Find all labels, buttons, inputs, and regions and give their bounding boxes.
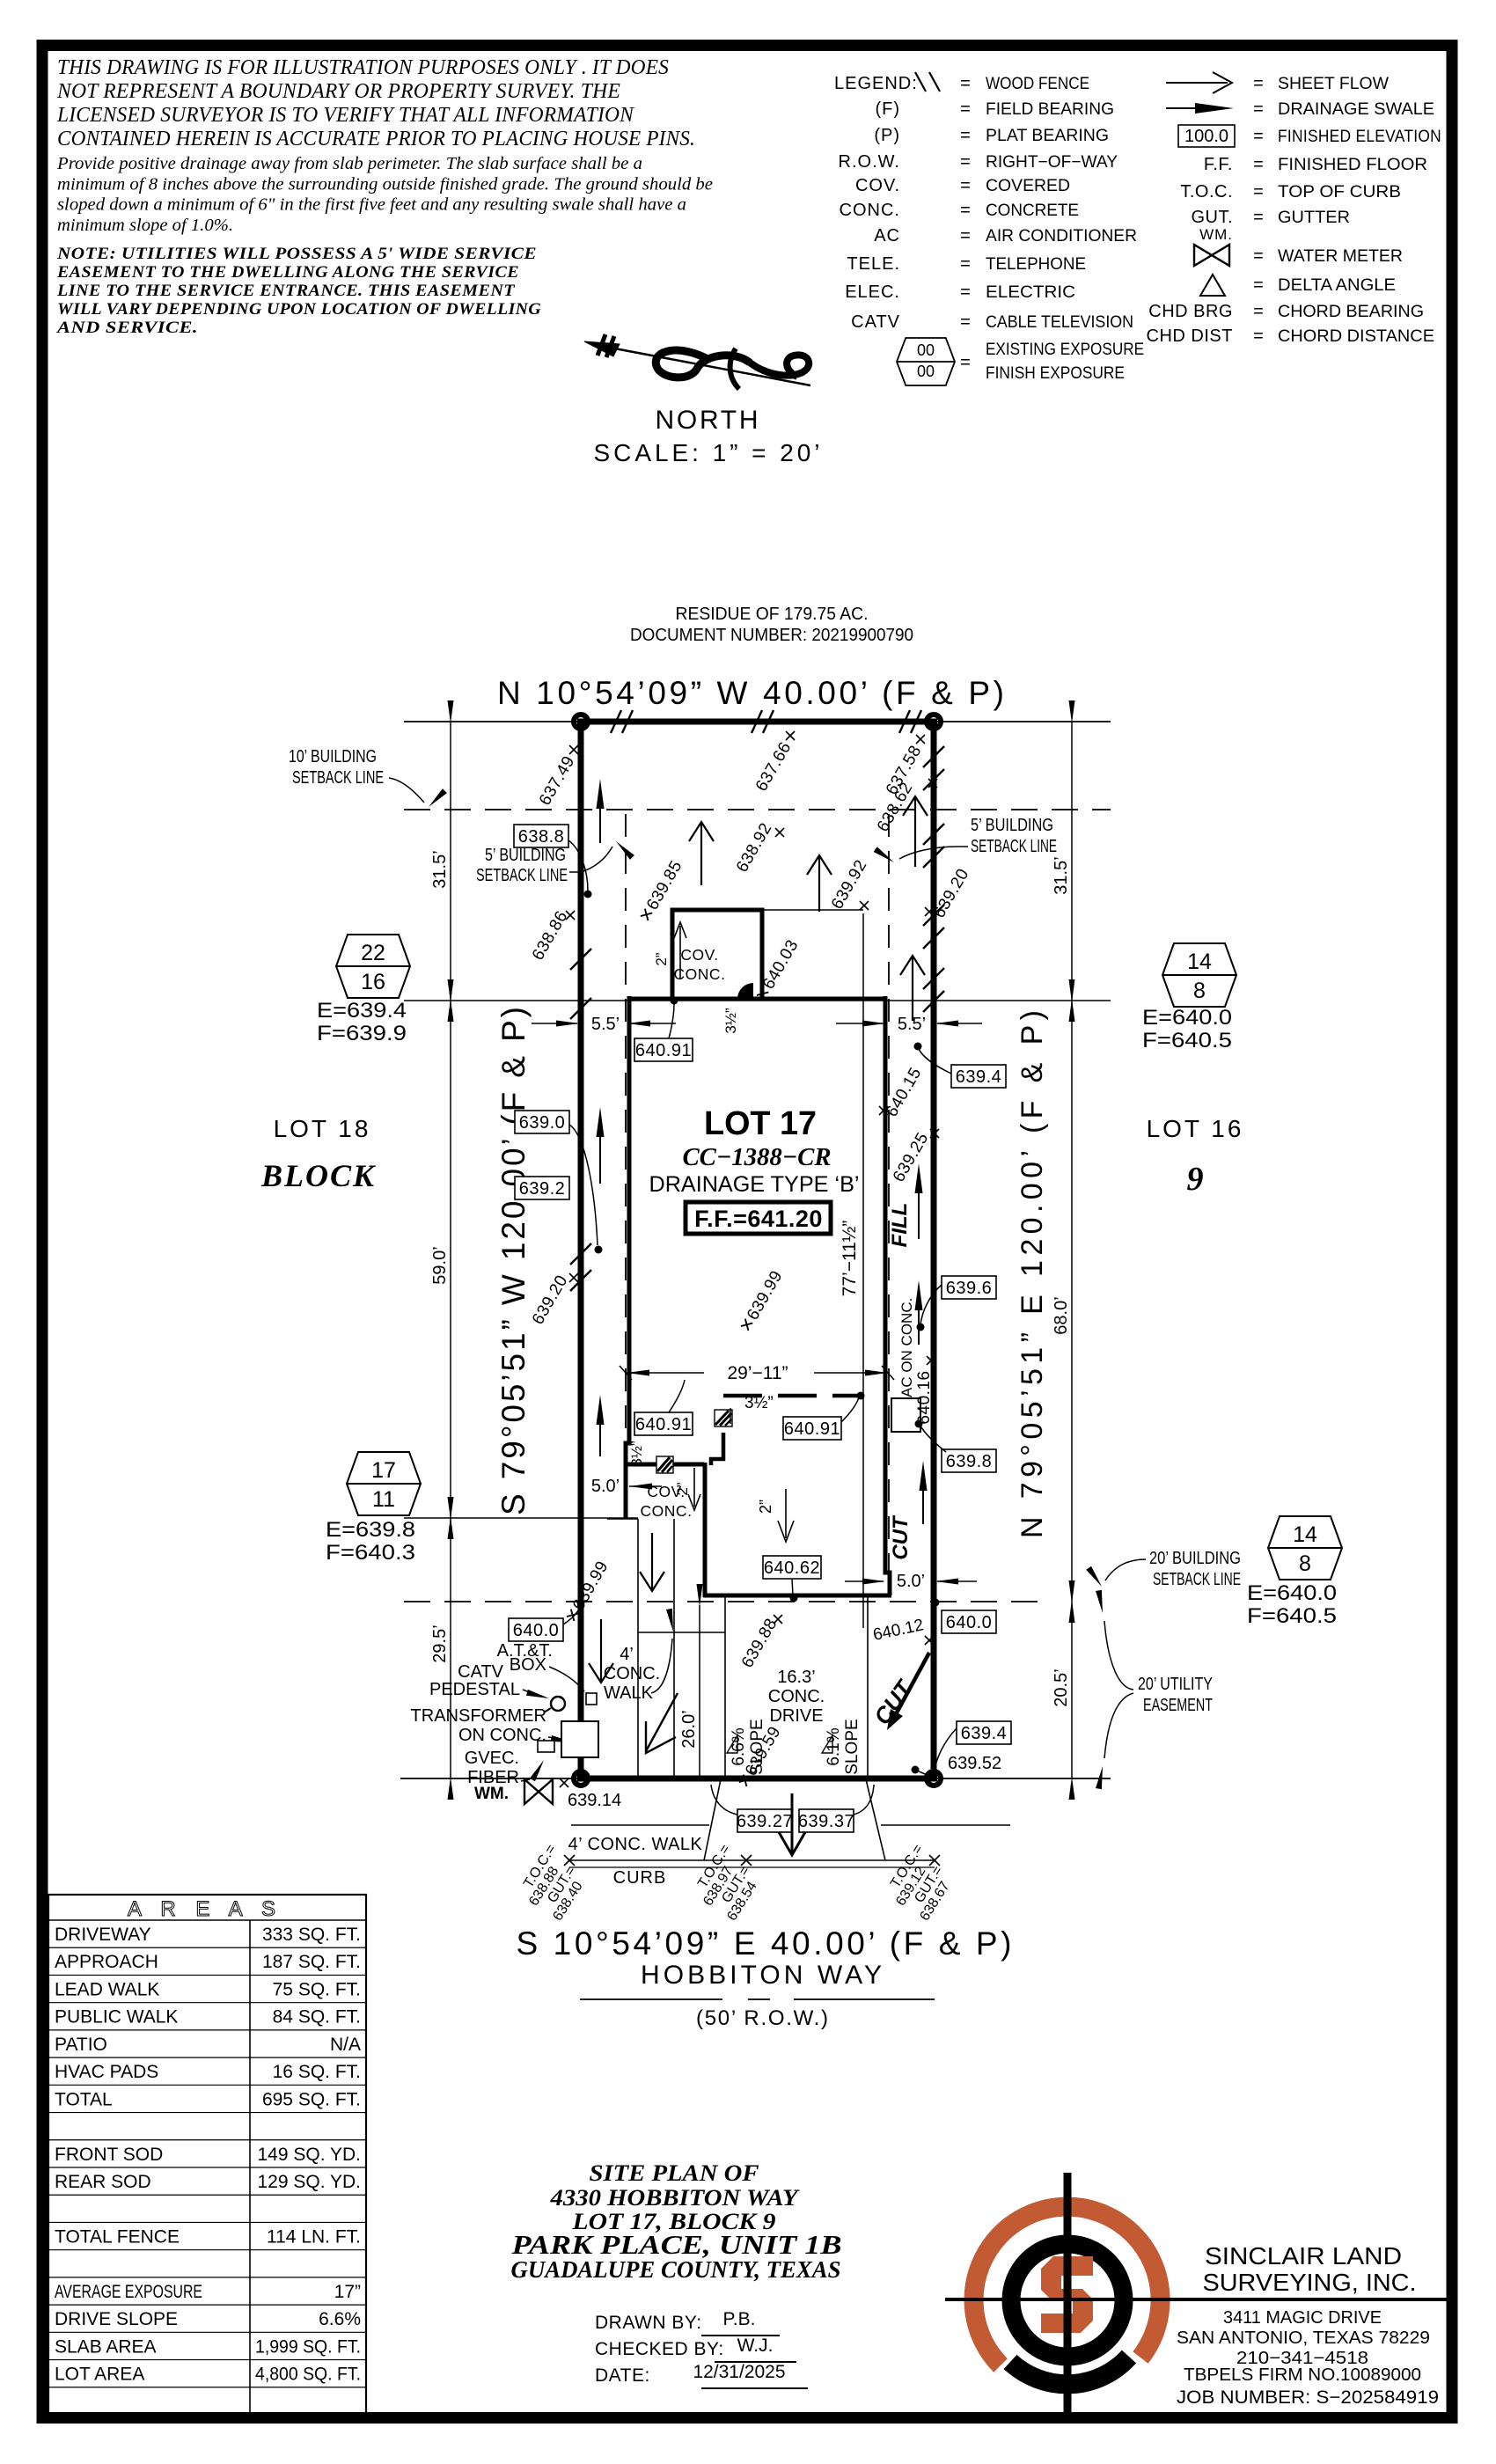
svg-text:4330 HOBBITON WAY: 4330 HOBBITON WAY bbox=[549, 2185, 799, 2211]
svg-text:5.0’: 5.0’ bbox=[897, 1572, 925, 1591]
svg-text:75 SQ. FT.: 75 SQ. FT. bbox=[273, 1979, 361, 1999]
svg-text:=: = bbox=[960, 74, 971, 93]
svg-text:SETBACK LINE: SETBACK LINE bbox=[971, 837, 1057, 856]
svg-text:=: = bbox=[1253, 74, 1264, 93]
svg-text:=: = bbox=[1253, 155, 1264, 174]
svg-text:639.14: 639.14 bbox=[568, 1791, 621, 1810]
svg-text:ON CONC.: ON CONC. bbox=[458, 1726, 546, 1745]
svg-text:CONC.: CONC. bbox=[604, 1664, 660, 1683]
svg-text:SLAB AREA: SLAB AREA bbox=[55, 2336, 157, 2357]
svg-text:639.8: 639.8 bbox=[946, 1452, 993, 1471]
svg-text:E=639.4: E=639.4 bbox=[317, 999, 407, 1023]
svg-text:84 SQ. FT.: 84 SQ. FT. bbox=[273, 2007, 361, 2028]
svg-text:=: = bbox=[1253, 326, 1264, 346]
svg-text:4’ CONC. WALK: 4’ CONC. WALK bbox=[568, 1835, 703, 1854]
svg-text:DOCUMENT NUMBER: 20219900790: DOCUMENT NUMBER: 20219900790 bbox=[630, 626, 913, 645]
svg-text:DRIVEWAY: DRIVEWAY bbox=[55, 1925, 151, 1945]
svg-text:PATIO: PATIO bbox=[55, 2035, 107, 2055]
svg-text:SITE PLAN OF: SITE PLAN OF bbox=[590, 2160, 759, 2186]
svg-text:LOT 16: LOT 16 bbox=[1147, 1115, 1244, 1142]
svg-text:CURB: CURB bbox=[613, 1868, 667, 1888]
svg-text:9: 9 bbox=[1187, 1161, 1204, 1198]
svg-text:CHORD BEARING: CHORD BEARING bbox=[1278, 303, 1424, 321]
svg-text:=: = bbox=[1253, 246, 1264, 266]
svg-text:CONC.: CONC. bbox=[768, 1687, 825, 1706]
svg-text:638.8: 638.8 bbox=[518, 827, 565, 847]
svg-text:GVEC.: GVEC. bbox=[465, 1749, 519, 1768]
svg-text:16.3’: 16.3’ bbox=[777, 1668, 815, 1687]
svg-text:DRAINAGE TYPE ‘B’: DRAINAGE TYPE ‘B’ bbox=[649, 1172, 860, 1197]
svg-text:=: = bbox=[960, 99, 971, 119]
svg-text:DRAWN BY:: DRAWN BY: bbox=[595, 2313, 702, 2333]
svg-text:LOT AREA: LOT AREA bbox=[55, 2365, 144, 2385]
svg-text:639.4: 639.4 bbox=[961, 1724, 1008, 1743]
svg-text:31.5’: 31.5’ bbox=[430, 850, 450, 888]
svg-text:REAR SOD: REAR SOD bbox=[55, 2172, 151, 2192]
svg-text:DELTA ANGLE: DELTA ANGLE bbox=[1278, 276, 1396, 295]
svg-text:F=640.3: F=640.3 bbox=[326, 1541, 415, 1565]
svg-text:F.F.: F.F. bbox=[1204, 155, 1233, 174]
svg-text:CONC.: CONC. bbox=[641, 1502, 693, 1520]
svg-text:=: = bbox=[960, 126, 971, 145]
svg-text:LICENSED SURVEYOR IS TO VERIFY: LICENSED SURVEYOR IS TO VERIFY THAT ALL … bbox=[56, 103, 634, 127]
svg-text:639.37: 639.37 bbox=[798, 1812, 854, 1831]
svg-text:TBPELS FIRM NO.10089000: TBPELS FIRM NO.10089000 bbox=[1184, 2365, 1421, 2385]
svg-text:CATV: CATV bbox=[851, 312, 900, 332]
svg-text:FINISHED FLOOR: FINISHED FLOOR bbox=[1278, 156, 1427, 174]
svg-text:HOBBITON WAY: HOBBITON WAY bbox=[641, 1961, 882, 1990]
svg-text:SETBACK LINE: SETBACK LINE bbox=[476, 866, 568, 885]
svg-text:F=639.9: F=639.9 bbox=[317, 1022, 407, 1045]
svg-text:6.6%: 6.6% bbox=[319, 2309, 361, 2329]
svg-text:=: = bbox=[960, 353, 971, 372]
svg-text:minimum slope of 1.0%.: minimum slope of 1.0%. bbox=[57, 216, 233, 235]
svg-text:3½”: 3½” bbox=[722, 1008, 739, 1034]
svg-text:AIR CONDITIONER: AIR CONDITIONER bbox=[986, 227, 1137, 246]
svg-text:14: 14 bbox=[1187, 950, 1212, 974]
svg-text:CUT: CUT bbox=[889, 1514, 913, 1560]
svg-text:5.0’: 5.0’ bbox=[591, 1477, 620, 1496]
svg-text:29.5’: 29.5’ bbox=[430, 1624, 450, 1662]
svg-text:=: = bbox=[1253, 127, 1264, 146]
svg-text:AC ON CONC.: AC ON CONC. bbox=[898, 1298, 915, 1397]
svg-text:TOP OF CURB: TOP OF CURB bbox=[1278, 183, 1401, 202]
svg-text:SHEET FLOW: SHEET FLOW bbox=[1278, 75, 1389, 93]
svg-text:F.F.=641.20: F.F.=641.20 bbox=[694, 1206, 823, 1232]
svg-text:APPROACH: APPROACH bbox=[55, 1952, 158, 1972]
svg-text:PUBLIC WALK: PUBLIC WALK bbox=[55, 2007, 178, 2028]
svg-text:20’ UTILITY: 20’ UTILITY bbox=[1138, 1675, 1213, 1694]
svg-text:333 SQ. FT.: 333 SQ. FT. bbox=[262, 1925, 361, 1945]
svg-text:8: 8 bbox=[1299, 1551, 1311, 1576]
svg-text:EASEMENT: EASEMENT bbox=[1143, 1696, 1213, 1715]
svg-text:20.5’: 20.5’ bbox=[1052, 1668, 1071, 1706]
svg-text:P.B.: P.B. bbox=[723, 2309, 756, 2329]
svg-text:CATV: CATV bbox=[458, 1662, 504, 1682]
svg-text:=: = bbox=[1253, 182, 1264, 202]
svg-text:16: 16 bbox=[361, 970, 385, 994]
svg-text:640.0: 640.0 bbox=[513, 1621, 560, 1640]
svg-text:5’ BUILDING: 5’ BUILDING bbox=[971, 816, 1053, 835]
svg-text:=: = bbox=[960, 312, 971, 332]
svg-text:695 SQ. FT.: 695 SQ. FT. bbox=[262, 2089, 361, 2109]
svg-text:640.91: 640.91 bbox=[635, 1415, 692, 1434]
svg-text:=: = bbox=[1253, 275, 1264, 295]
svg-text:T.O.C.: T.O.C. bbox=[1180, 182, 1233, 202]
svg-text:=: = bbox=[1253, 208, 1264, 227]
svg-text:640.91: 640.91 bbox=[784, 1419, 840, 1439]
svg-text:00: 00 bbox=[917, 341, 935, 359]
svg-text:BLOCK: BLOCK bbox=[260, 1158, 377, 1193]
svg-text:12/31/2025: 12/31/2025 bbox=[693, 2362, 785, 2382]
svg-text:THIS DRAWING IS FOR ILLUSTRATI: THIS DRAWING IS FOR ILLUSTRATION PURPOSE… bbox=[57, 55, 669, 79]
svg-text:2”: 2” bbox=[653, 952, 670, 965]
svg-text:F=640.5: F=640.5 bbox=[1247, 1604, 1337, 1628]
svg-text:31.5’: 31.5’ bbox=[1052, 856, 1071, 894]
svg-text:WATER METER: WATER METER bbox=[1278, 247, 1403, 266]
svg-text:4,800 SQ. FT.: 4,800 SQ. FT. bbox=[255, 2365, 361, 2385]
svg-text:SLOPE: SLOPE bbox=[748, 1719, 766, 1774]
svg-text:=: = bbox=[960, 152, 971, 172]
svg-text:6.6%: 6.6% bbox=[730, 1727, 748, 1765]
svg-text:3½”: 3½” bbox=[744, 1394, 774, 1412]
svg-text:COV.: COV. bbox=[855, 176, 900, 195]
svg-text:5’ BUILDING: 5’ BUILDING bbox=[485, 846, 566, 865]
svg-text:AVERAGE EXPOSURE: AVERAGE EXPOSURE bbox=[55, 2282, 202, 2302]
svg-text:(P): (P) bbox=[874, 126, 900, 145]
svg-text:SURVEYING, INC.: SURVEYING, INC. bbox=[1203, 2269, 1417, 2296]
svg-text:AND SERVICE.: AND SERVICE. bbox=[56, 319, 198, 337]
svg-text:187 SQ. FT.: 187 SQ. FT. bbox=[262, 1952, 361, 1972]
svg-text:1,999 SQ. FT.: 1,999 SQ. FT. bbox=[255, 2336, 361, 2357]
svg-text:Provide positive drainage away: Provide positive drainage away from slab… bbox=[56, 154, 642, 173]
svg-text:00: 00 bbox=[917, 363, 935, 380]
svg-text:20’ BUILDING: 20’ BUILDING bbox=[1149, 1549, 1241, 1568]
svg-text:F=640.5: F=640.5 bbox=[1142, 1029, 1232, 1052]
svg-text:NORTH: NORTH bbox=[656, 406, 759, 435]
svg-text:FINISHED ELEVATION: FINISHED ELEVATION bbox=[1278, 128, 1441, 146]
svg-text:3411 MAGIC DRIVE: 3411 MAGIC DRIVE bbox=[1223, 2308, 1382, 2328]
svg-text:CABLE TELEVISION: CABLE TELEVISION bbox=[986, 313, 1133, 332]
svg-text:CHD BRG: CHD BRG bbox=[1148, 302, 1233, 321]
svg-text:=: = bbox=[960, 226, 971, 246]
svg-text:16 SQ. FT.: 16 SQ. FT. bbox=[273, 2062, 361, 2082]
svg-text:=: = bbox=[960, 176, 971, 195]
svg-text:SETBACK LINE: SETBACK LINE bbox=[1153, 1570, 1241, 1589]
svg-text:CHECKED BY:: CHECKED BY: bbox=[595, 2339, 724, 2359]
svg-text:=: = bbox=[1253, 302, 1264, 321]
svg-text:17”: 17” bbox=[334, 2282, 361, 2302]
svg-text:WALK: WALK bbox=[604, 1683, 654, 1703]
svg-text:DATE:: DATE: bbox=[595, 2365, 650, 2386]
svg-text:PARK PLACE, UNIT 1B: PARK PLACE, UNIT 1B bbox=[510, 2229, 841, 2260]
svg-text:SCALE: 1” = 20’: SCALE: 1” = 20’ bbox=[594, 439, 820, 466]
svg-text:DRIVE: DRIVE bbox=[769, 1706, 823, 1726]
svg-text:LEAD WALK: LEAD WALK bbox=[55, 1979, 159, 1999]
svg-text:CONC.: CONC. bbox=[674, 965, 726, 983]
svg-text:NOTE: UTILITIES WILL POSSESS A: NOTE: UTILITIES WILL POSSESS A 5' WIDE S… bbox=[56, 245, 537, 263]
svg-text:TOTAL FENCE: TOTAL FENCE bbox=[55, 2226, 180, 2247]
svg-text:(F): (F) bbox=[875, 99, 900, 119]
svg-text:COVERED: COVERED bbox=[986, 177, 1070, 195]
svg-text:WILL VARY DEPENDING UPON LOCAT: WILL VARY DEPENDING UPON LOCATION OF DWE… bbox=[57, 300, 541, 319]
svg-text:SLOPE: SLOPE bbox=[843, 1719, 862, 1774]
svg-text:639.4: 639.4 bbox=[956, 1067, 1002, 1087]
svg-text:LEGEND:: LEGEND: bbox=[834, 74, 918, 93]
svg-text:CC−1388−CR: CC−1388−CR bbox=[683, 1143, 832, 1171]
svg-text:FILL: FILL bbox=[888, 1203, 912, 1248]
svg-text:NOT REPRESENT A BOUNDARY OR PR: NOT REPRESENT A BOUNDARY OR PROPERTY SUR… bbox=[56, 79, 620, 103]
svg-text:E=640.0: E=640.0 bbox=[1247, 1581, 1337, 1605]
svg-text:GUTTER: GUTTER bbox=[1278, 209, 1350, 227]
svg-text:639.27: 639.27 bbox=[737, 1812, 793, 1831]
svg-text:77’−11½”: 77’−11½” bbox=[840, 1221, 860, 1297]
svg-text:5.5’: 5.5’ bbox=[591, 1015, 620, 1034]
svg-text:26.0’: 26.0’ bbox=[679, 1710, 699, 1748]
svg-text:640.0: 640.0 bbox=[946, 1613, 993, 1632]
svg-text:639.0: 639.0 bbox=[519, 1113, 566, 1133]
svg-text:8: 8 bbox=[1193, 979, 1206, 1003]
svg-text:minimum of 8 inches above the: minimum of 8 inches above the surroundin… bbox=[57, 174, 713, 194]
svg-text:JOB NUMBER: S−202584919: JOB NUMBER: S−202584919 bbox=[1177, 2387, 1439, 2408]
svg-text:2”: 2” bbox=[674, 1482, 691, 1495]
svg-text:29’−11”: 29’−11” bbox=[727, 1363, 788, 1383]
svg-text:5.5’: 5.5’ bbox=[898, 1015, 926, 1034]
svg-text:639.2: 639.2 bbox=[519, 1179, 566, 1199]
svg-text:BOX: BOX bbox=[510, 1655, 546, 1675]
svg-text:TRANSFORMER: TRANSFORMER bbox=[411, 1706, 546, 1726]
svg-text:11: 11 bbox=[372, 1487, 395, 1512]
svg-text:COV.: COV. bbox=[680, 946, 718, 964]
svg-text:17: 17 bbox=[371, 1458, 396, 1483]
svg-text:CONTAINED HEREIN IS ACCURATE P: CONTAINED HEREIN IS ACCURATE PRIOR TO PL… bbox=[57, 127, 695, 150]
svg-text:68.0’: 68.0’ bbox=[1052, 1296, 1071, 1334]
svg-text:SETBACK LINE: SETBACK LINE bbox=[292, 768, 384, 788]
svg-text:AC: AC bbox=[874, 226, 900, 246]
svg-text:ELECTRIC: ELECTRIC bbox=[986, 283, 1075, 302]
svg-text:CHD DIST: CHD DIST bbox=[1147, 326, 1233, 346]
svg-text:DRIVE SLOPE: DRIVE SLOPE bbox=[55, 2309, 178, 2329]
svg-text:640.91: 640.91 bbox=[635, 1041, 692, 1060]
svg-text:2”: 2” bbox=[757, 1500, 774, 1514]
svg-text:(50’ R.O.W.): (50’ R.O.W.) bbox=[696, 2006, 828, 2030]
svg-text:W.J.: W.J. bbox=[737, 2336, 774, 2356]
svg-text:WOOD FENCE: WOOD FENCE bbox=[986, 75, 1089, 93]
svg-text:ELEC.: ELEC. bbox=[845, 282, 900, 302]
svg-text:10’ BUILDING: 10’ BUILDING bbox=[289, 747, 377, 766]
svg-text:GUADALUPE COUNTY, TEXAS: GUADALUPE COUNTY, TEXAS bbox=[511, 2256, 841, 2283]
svg-text:14: 14 bbox=[1293, 1522, 1317, 1547]
svg-text:CHORD DISTANCE: CHORD DISTANCE bbox=[1278, 327, 1434, 346]
svg-text:sloped down a minimum of 6" in: sloped down a minimum of 6" in the first… bbox=[57, 195, 686, 215]
svg-text:R.O.W.: R.O.W. bbox=[839, 152, 900, 172]
svg-text:A R E A S: A R E A S bbox=[128, 1897, 282, 1921]
svg-text:149 SQ. YD.: 149 SQ. YD. bbox=[257, 2145, 361, 2165]
svg-text:EASEMENT TO THE DWELLING ALONG: EASEMENT TO THE DWELLING ALONG THE SERVI… bbox=[56, 263, 519, 282]
svg-text:PEDESTAL: PEDESTAL bbox=[429, 1680, 520, 1699]
svg-text:FIELD BEARING: FIELD BEARING bbox=[986, 100, 1114, 119]
svg-text:=: = bbox=[960, 201, 971, 220]
svg-text:TOTAL: TOTAL bbox=[55, 2089, 113, 2109]
svg-text:640.62: 640.62 bbox=[764, 1558, 820, 1578]
svg-text:E=640.0: E=640.0 bbox=[1142, 1006, 1232, 1030]
svg-text:FINISH EXPOSURE: FINISH EXPOSURE bbox=[986, 364, 1125, 383]
svg-text:639.52: 639.52 bbox=[948, 1754, 1001, 1773]
svg-text:WM.: WM. bbox=[474, 1785, 509, 1803]
svg-text:CONCRETE: CONCRETE bbox=[986, 202, 1079, 220]
svg-text:E=639.8: E=639.8 bbox=[326, 1518, 415, 1542]
svg-text:TELEPHONE: TELEPHONE bbox=[986, 255, 1086, 274]
svg-text:6.1%: 6.1% bbox=[825, 1727, 843, 1765]
svg-text:=: = bbox=[960, 282, 971, 302]
svg-text:114 LN. FT.: 114 LN. FT. bbox=[267, 2226, 361, 2247]
svg-text:LOT 18: LOT 18 bbox=[274, 1115, 371, 1142]
svg-text:=: = bbox=[960, 254, 971, 274]
svg-text:EXISTING EXPOSURE: EXISTING EXPOSURE bbox=[986, 341, 1144, 359]
svg-text:4’: 4’ bbox=[620, 1645, 634, 1664]
svg-text:FRONT SOD: FRONT SOD bbox=[55, 2145, 163, 2165]
svg-text:3½”: 3½” bbox=[628, 1441, 645, 1467]
svg-text:N/A: N/A bbox=[330, 2035, 361, 2055]
svg-text:SAN ANTONIO, TEXAS 78229: SAN ANTONIO, TEXAS 78229 bbox=[1177, 2328, 1430, 2348]
svg-text:RIGHT−OF−WAY: RIGHT−OF−WAY bbox=[986, 153, 1118, 172]
svg-text:SINCLAIR LAND: SINCLAIR LAND bbox=[1205, 2242, 1402, 2270]
svg-text:PLAT BEARING: PLAT BEARING bbox=[986, 127, 1109, 145]
svg-text:WM.: WM. bbox=[1199, 226, 1233, 243]
svg-text:HVAC PADS: HVAC PADS bbox=[55, 2062, 158, 2082]
svg-text:DRAINAGE SWALE: DRAINAGE SWALE bbox=[1278, 100, 1434, 119]
svg-text:GUT.: GUT. bbox=[1191, 208, 1233, 227]
svg-text:LINE TO THE SERVICE ENTRANCE.: LINE TO THE SERVICE ENTRANCE. THIS EASEM… bbox=[56, 282, 516, 300]
svg-text:LOT 17: LOT 17 bbox=[704, 1105, 817, 1142]
svg-text:100.0: 100.0 bbox=[1184, 127, 1228, 146]
svg-text:RESIDUE OF 179.75 AC.: RESIDUE OF 179.75 AC. bbox=[676, 605, 869, 624]
svg-text:CONC.: CONC. bbox=[840, 201, 900, 220]
svg-text:59.0’: 59.0’ bbox=[430, 1246, 450, 1284]
svg-text:TELE.: TELE. bbox=[847, 254, 900, 274]
svg-text:129 SQ. YD.: 129 SQ. YD. bbox=[257, 2172, 361, 2192]
svg-text:=: = bbox=[1253, 99, 1264, 119]
svg-text:639.6: 639.6 bbox=[946, 1279, 993, 1298]
svg-text:22: 22 bbox=[361, 941, 385, 965]
